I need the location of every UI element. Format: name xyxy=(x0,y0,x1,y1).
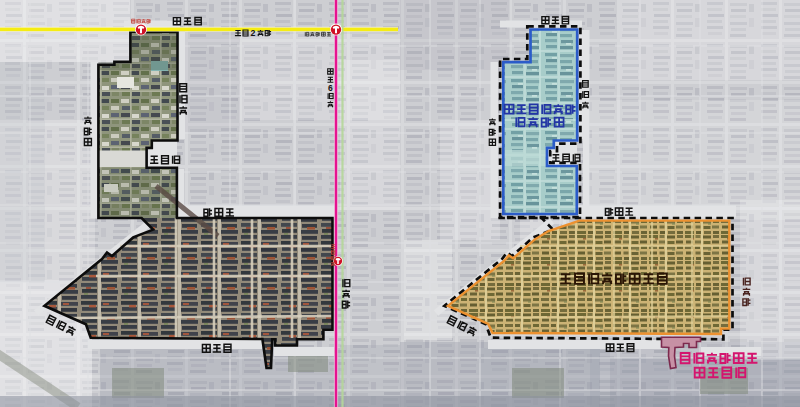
svg-text:6: 6 xyxy=(328,83,333,93)
svg-text:2: 2 xyxy=(251,28,256,38)
